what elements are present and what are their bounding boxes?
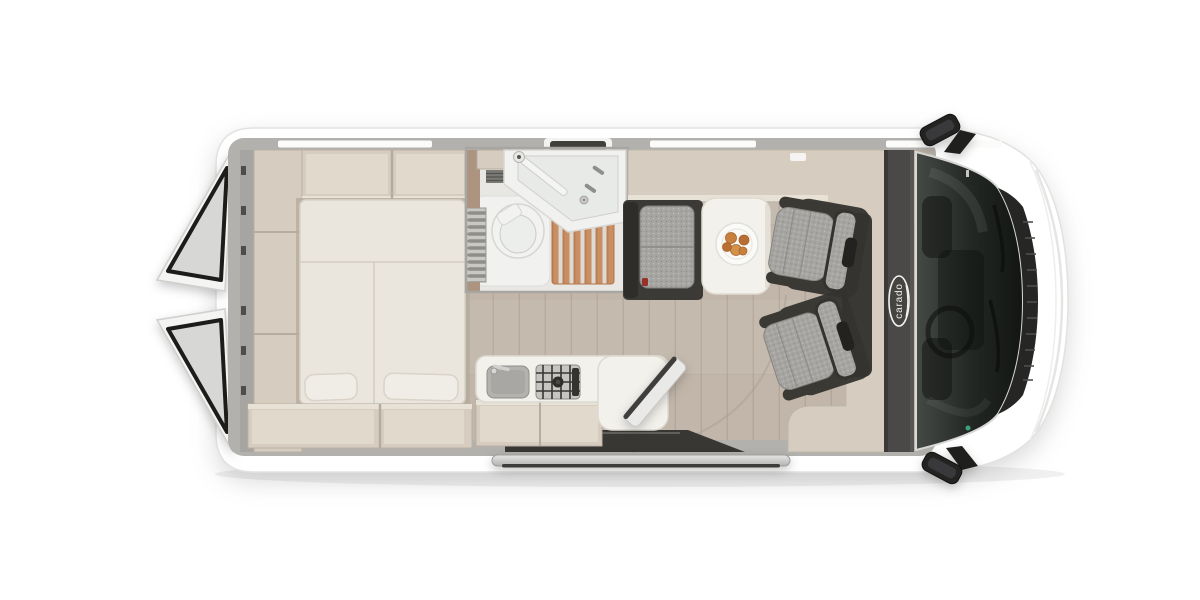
floorplan-illustration: carado — [0, 0, 1200, 600]
pillow-left — [305, 373, 358, 401]
mirror-tag — [966, 426, 971, 431]
seatbelt-buckle — [642, 278, 648, 286]
roof-window-strip-3 — [886, 141, 1002, 148]
overhead-shelf-rear — [302, 150, 468, 202]
gas-hob — [536, 365, 580, 399]
bathroom-slat-mat — [466, 208, 486, 282]
speaker-box — [790, 153, 806, 161]
croissant — [726, 233, 737, 244]
breakfast-plate — [716, 223, 758, 265]
dinette-table — [702, 198, 770, 294]
mattress — [300, 200, 465, 404]
bench-backrest — [624, 202, 638, 298]
rear-door-top — [157, 148, 233, 291]
brand-logo: carado — [889, 276, 909, 326]
dinette-bench — [623, 200, 703, 300]
roof-window-strip-1 — [278, 141, 432, 148]
kitchen-sink — [487, 364, 529, 398]
rear-bedroom — [240, 150, 472, 452]
roof-window-strip-2 — [650, 141, 756, 148]
bathroom-left-wall-2 — [466, 282, 480, 291]
bathroom — [466, 148, 628, 292]
swivel-seat-passenger — [765, 194, 872, 301]
rear-storage-row — [248, 404, 472, 448]
bathroom-cabinet — [477, 150, 507, 169]
bed — [300, 200, 465, 404]
entry-step — [492, 455, 790, 468]
brand-logo-text: carado — [894, 283, 905, 318]
pillow-right — [384, 373, 459, 401]
toilet — [492, 203, 544, 258]
rear-door-bottom — [157, 309, 233, 452]
kitchen-cabinet — [476, 400, 602, 446]
hob-control — [572, 368, 579, 396]
scene-campervan-floorplan: carado — [0, 0, 1200, 600]
